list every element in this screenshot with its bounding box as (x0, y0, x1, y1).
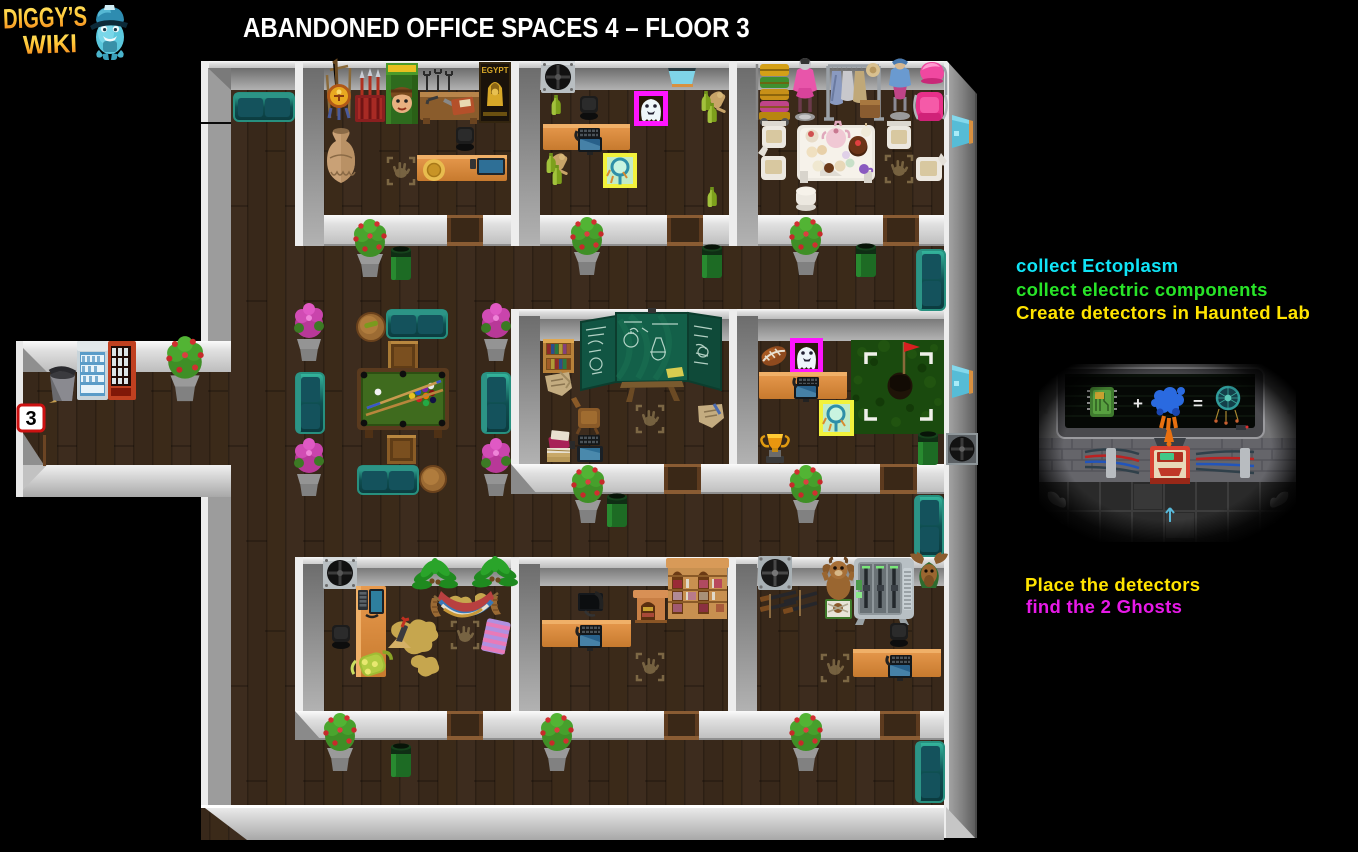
svg-text:EGYPT: EGYPT (481, 66, 508, 75)
svg-text:WIKI: WIKI (22, 28, 77, 60)
svg-text:3: 3 (25, 408, 36, 430)
